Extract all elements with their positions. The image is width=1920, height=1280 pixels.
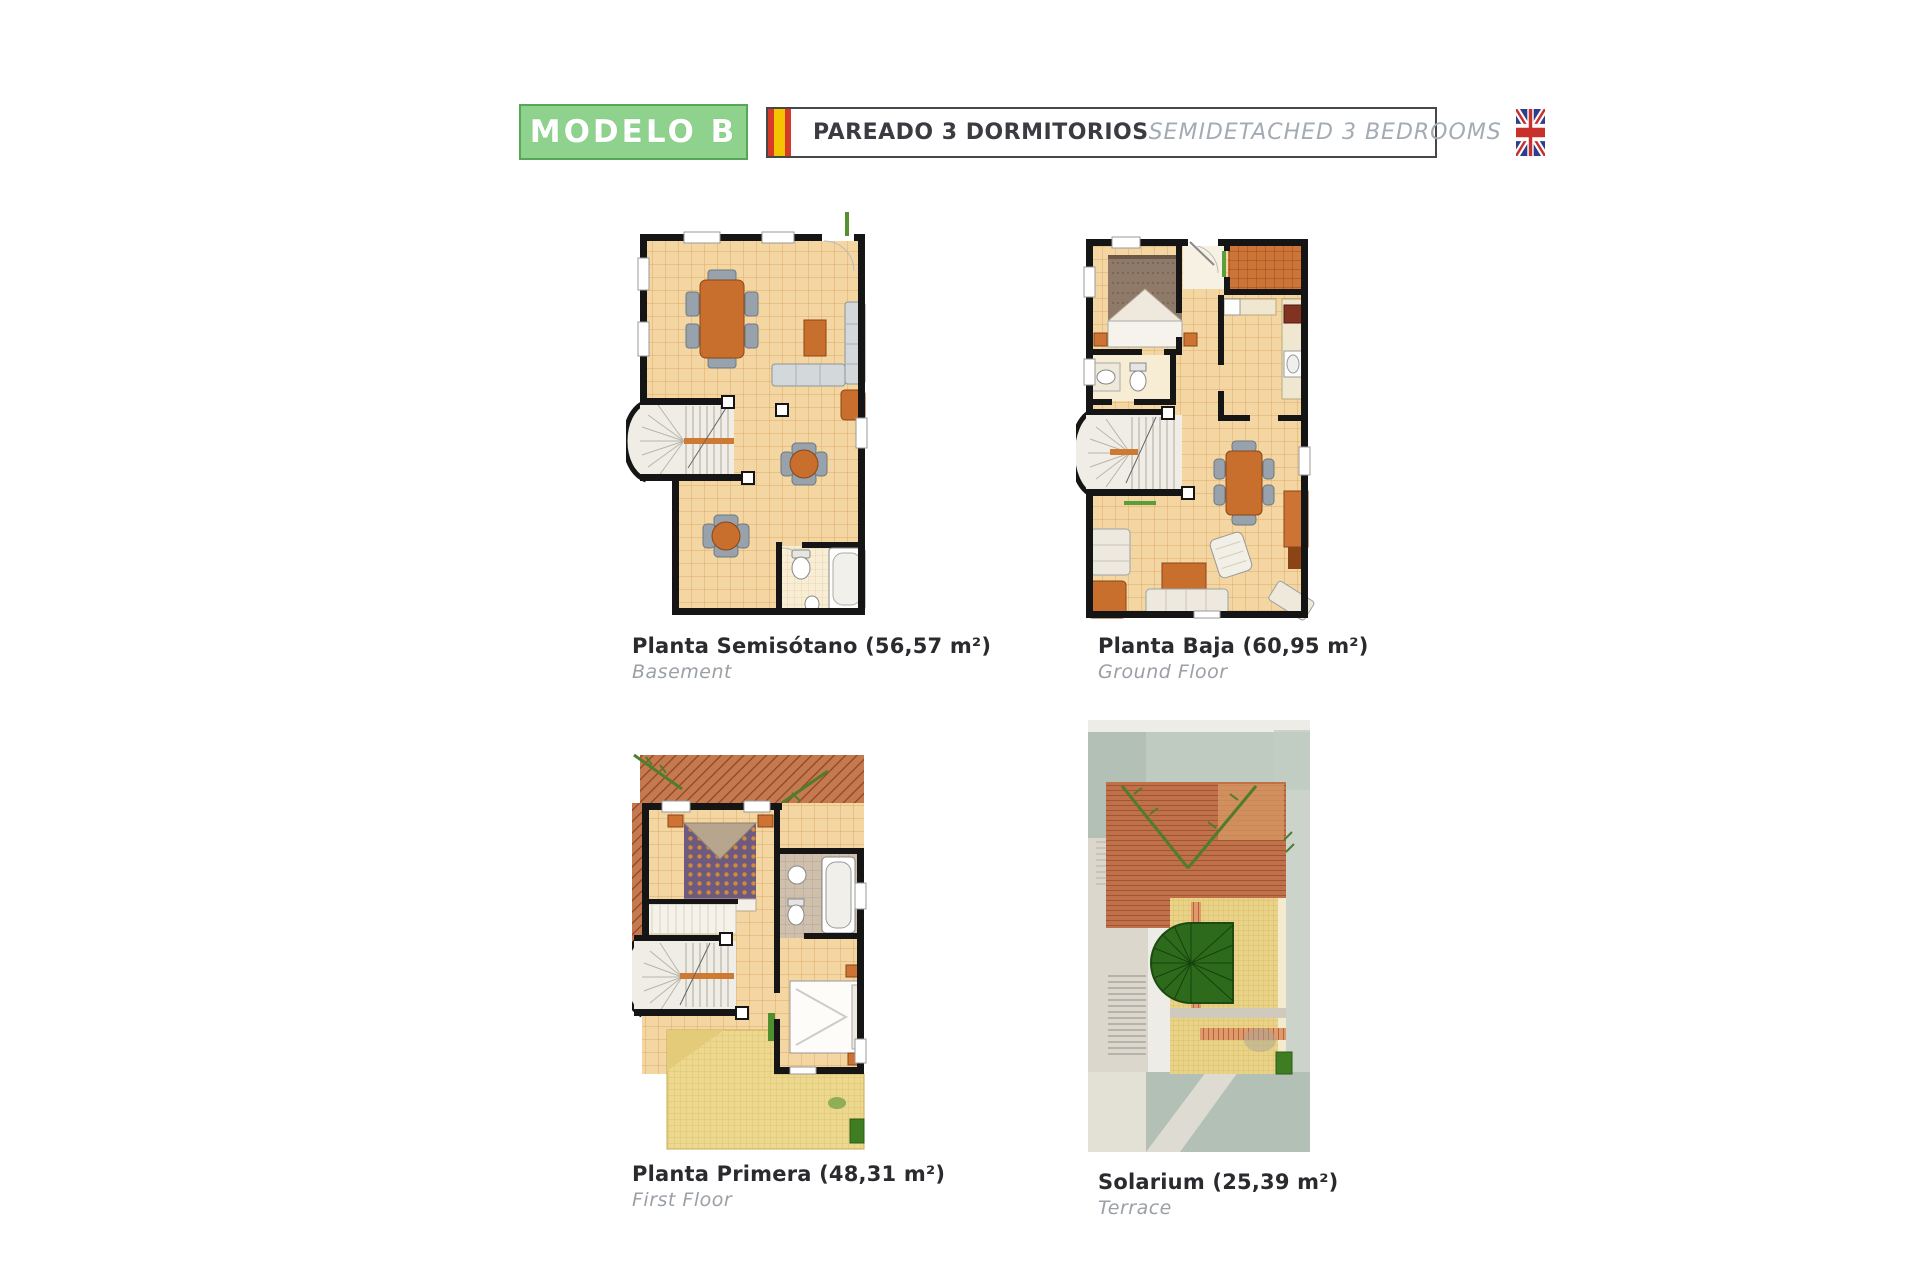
toilet — [788, 905, 804, 925]
sink — [1097, 370, 1115, 384]
window — [762, 232, 794, 243]
plan-caption-solarium: Solarium (25,39 m²) Terrace — [1098, 1170, 1338, 1219]
window — [855, 1039, 866, 1063]
window — [1112, 237, 1140, 248]
fridge — [1224, 299, 1240, 315]
entrance-porch — [1228, 243, 1301, 291]
entrance-hall — [1183, 245, 1224, 289]
window — [744, 801, 770, 812]
window — [638, 258, 649, 290]
spiral-staircase — [1076, 407, 1194, 505]
kitchen-sink — [1287, 355, 1299, 373]
window — [855, 883, 866, 909]
nightstand — [1094, 333, 1107, 346]
window — [856, 418, 867, 448]
plan-title: Planta Primera (48,31 m²) — [632, 1162, 945, 1186]
bathroom — [780, 854, 857, 938]
plan-caption-basement: Planta Semisótano (56,57 m²) Basement — [632, 634, 991, 683]
plant — [1276, 1052, 1292, 1074]
window — [1194, 611, 1220, 618]
window — [1084, 359, 1095, 385]
uk-flag-icon — [1516, 109, 1545, 156]
brochure-page: MODELO B PAREADO 3 DORMITORIOS SEMIDETAC… — [0, 0, 1920, 1280]
plan-subtitle: Basement — [632, 661, 991, 683]
entry-door — [845, 212, 849, 236]
plan-caption-first-floor: Planta Primera (48,31 m²) First Floor — [632, 1162, 945, 1211]
window — [1299, 447, 1310, 475]
plan-subtitle: Terrace — [1098, 1197, 1338, 1219]
plant — [828, 1097, 846, 1109]
toilet — [1130, 371, 1146, 391]
model-badge-label: MODELO B — [530, 114, 738, 150]
floor-plan-basement — [626, 212, 871, 622]
plant — [1124, 501, 1156, 505]
sink — [788, 866, 806, 884]
stair-tower-roof — [1151, 923, 1233, 1003]
window — [638, 322, 649, 356]
floor-plan-first — [632, 753, 870, 1153]
nightstand — [758, 815, 773, 827]
toilet — [792, 557, 810, 579]
porch-door — [1222, 251, 1226, 277]
basement-bathroom — [776, 542, 865, 615]
plant — [850, 1119, 864, 1143]
plan-title: Solarium (25,39 m²) — [1098, 1170, 1338, 1194]
spain-flag-icon — [768, 109, 791, 156]
plan-title: Planta Baja (60,95 m²) — [1098, 634, 1369, 658]
plant — [768, 1013, 775, 1041]
bed — [1108, 321, 1182, 347]
nightstand — [1184, 333, 1197, 346]
floor-plan-ground — [1076, 233, 1316, 625]
oven — [1284, 305, 1302, 323]
window — [684, 232, 720, 243]
plan-subtitle: First Floor — [632, 1189, 945, 1211]
plan-title: Planta Semisótano (56,57 m²) — [632, 634, 991, 658]
closet — [644, 904, 736, 934]
title-english: SEMIDETACHED 3 BEDROOMS — [1149, 120, 1502, 145]
plan-caption-ground-floor: Planta Baja (60,95 m²) Ground Floor — [1098, 634, 1369, 683]
plan-subtitle: Ground Floor — [1098, 661, 1369, 683]
title-bar: PAREADO 3 DORMITORIOS SEMIDETACHED 3 BED… — [766, 107, 1437, 158]
coffee-table — [1162, 563, 1206, 591]
side-table — [804, 320, 826, 356]
window — [790, 1067, 816, 1074]
bathroom — [1086, 355, 1176, 401]
window — [662, 801, 690, 812]
solarium-plan — [1088, 720, 1310, 1152]
nightstand — [668, 815, 683, 827]
spiral-staircase — [632, 933, 748, 1019]
window — [1084, 267, 1095, 297]
model-badge: MODELO B — [519, 104, 748, 160]
title-spanish: PAREADO 3 DORMITORIOS — [813, 120, 1149, 145]
